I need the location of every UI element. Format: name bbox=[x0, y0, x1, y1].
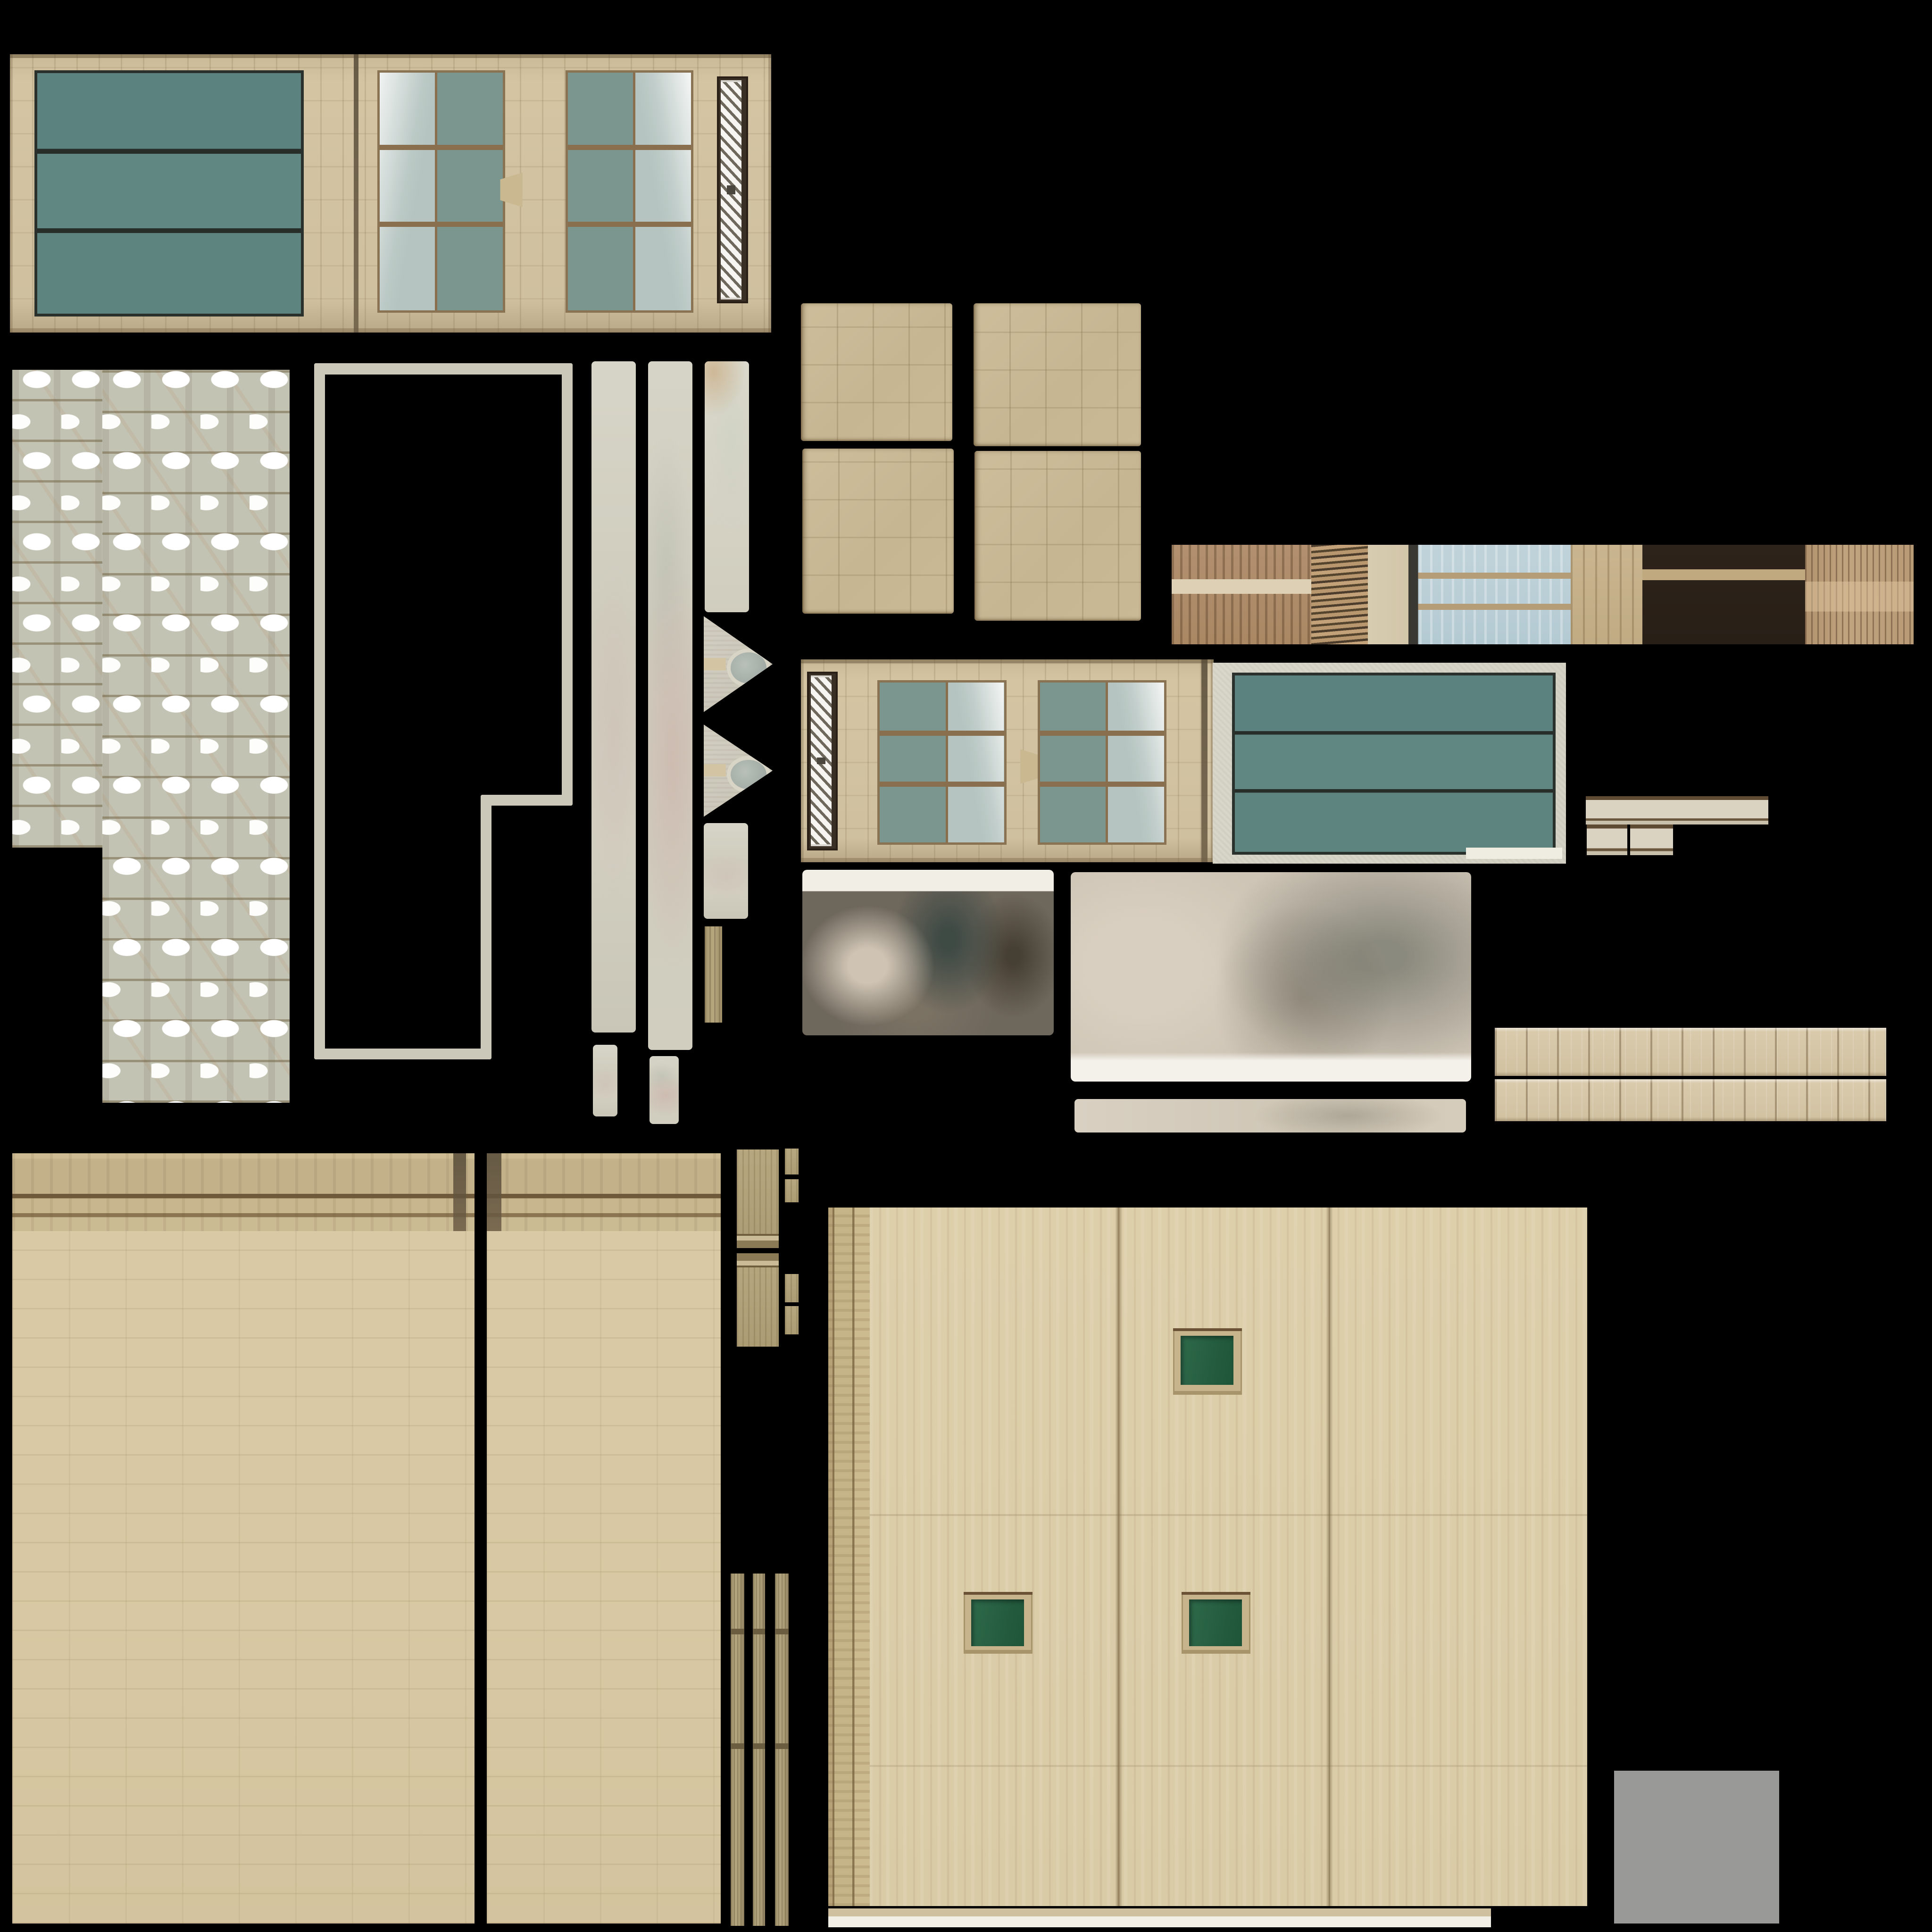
facade-b-white-sliver bbox=[1466, 848, 1562, 858]
plank-bar-lower bbox=[1495, 1079, 1887, 1121]
tan-block-1 bbox=[737, 1149, 779, 1248]
facade-b-window-1 bbox=[877, 680, 1007, 845]
grain-wall-pilaster bbox=[828, 1207, 870, 1906]
strip-a-tail bbox=[593, 1045, 617, 1116]
strip-dark-brown-band bbox=[1642, 569, 1805, 580]
strip-light-column bbox=[1368, 545, 1408, 645]
green-window-lower-right-glass bbox=[1189, 1599, 1242, 1646]
triangle-2-tab bbox=[704, 764, 726, 776]
facade-a-window-2 bbox=[566, 70, 693, 313]
tan-block-2 bbox=[737, 1253, 779, 1347]
narrow-tan-strip bbox=[705, 926, 722, 1023]
strip-dark-brown bbox=[1642, 545, 1805, 645]
triangle-1-tab bbox=[704, 658, 726, 670]
wall-base-strip bbox=[828, 1908, 1491, 1927]
grain-wall-seam-1 bbox=[1115, 1207, 1123, 1906]
outline-jog bbox=[481, 795, 573, 806]
facade-b-joint-line bbox=[1201, 659, 1207, 863]
strip-b-tail bbox=[650, 1056, 679, 1124]
tan-tiny-b bbox=[785, 1179, 799, 1203]
ashlar-right-pilaster-cap bbox=[487, 1153, 502, 1231]
outline-right-upper bbox=[562, 363, 573, 806]
strip-b bbox=[648, 361, 692, 1050]
lod-texture-dark bbox=[802, 870, 1054, 1035]
facade-a-window-1 bbox=[377, 70, 505, 313]
ashlar-wall-left-cornice bbox=[12, 1153, 475, 1231]
strip-roof-wave bbox=[1311, 545, 1368, 645]
thin-strip-2 bbox=[753, 1574, 765, 1926]
outline-bottom bbox=[314, 1049, 491, 1059]
molding-bar-long bbox=[1586, 796, 1768, 824]
thin-strip-1 bbox=[731, 1574, 744, 1926]
lod-texture-strip bbox=[1074, 1099, 1466, 1132]
ashlar-wall-right bbox=[487, 1153, 721, 1924]
facade-b-window-2 bbox=[1038, 680, 1167, 845]
facade-b-teal-panel bbox=[1232, 673, 1556, 855]
facade-a-teal-panel bbox=[34, 70, 304, 316]
strip-tan-striped bbox=[1571, 545, 1642, 645]
molding-piece-b bbox=[1630, 824, 1673, 855]
ashlar-left-pilaster-cap bbox=[453, 1153, 466, 1231]
grain-wall-seam-2 bbox=[1326, 1207, 1333, 1906]
stone-square-bl bbox=[802, 449, 954, 614]
outline-top bbox=[314, 363, 573, 374]
strip-ribbed-copper bbox=[1805, 545, 1914, 645]
stone-square-tr bbox=[974, 303, 1141, 446]
tan-tiny-d bbox=[785, 1306, 799, 1334]
piece-below-triangles bbox=[704, 823, 748, 919]
facade-b-grille bbox=[811, 675, 832, 847]
texture-atlas-canvas bbox=[0, 0, 1932, 1932]
green-window-upper-glass bbox=[1181, 1336, 1233, 1385]
thin-strip-3 bbox=[775, 1574, 789, 1926]
molding-piece-a bbox=[1587, 824, 1627, 855]
tan-tiny-c bbox=[785, 1274, 799, 1302]
plank-bar-upper bbox=[1495, 1028, 1887, 1076]
facade-a-joint-line bbox=[354, 54, 359, 333]
grain-wall bbox=[828, 1207, 1587, 1906]
stone-square-tl bbox=[801, 303, 952, 441]
green-window-lower-left-glass bbox=[971, 1599, 1024, 1646]
strip-c bbox=[705, 361, 749, 613]
strip-ribbed-brown bbox=[1172, 545, 1311, 645]
outline-left bbox=[314, 363, 325, 1059]
tan-tiny-a bbox=[785, 1149, 799, 1174]
outline-right-lower bbox=[481, 795, 491, 1060]
facade-a-grille bbox=[721, 80, 741, 300]
strip-cream-band bbox=[1172, 579, 1311, 594]
stone-square-br bbox=[974, 451, 1141, 621]
roof-shingles-right bbox=[102, 370, 290, 1103]
strip-blue-window bbox=[1408, 545, 1571, 645]
strip-a bbox=[591, 361, 636, 1033]
gray-swatch bbox=[1614, 1771, 1779, 1924]
roof-shingles-left bbox=[12, 370, 102, 848]
lod-texture-light bbox=[1071, 872, 1471, 1082]
ashlar-wall-left bbox=[12, 1153, 475, 1924]
ashlar-wall-right-cornice bbox=[487, 1153, 721, 1231]
